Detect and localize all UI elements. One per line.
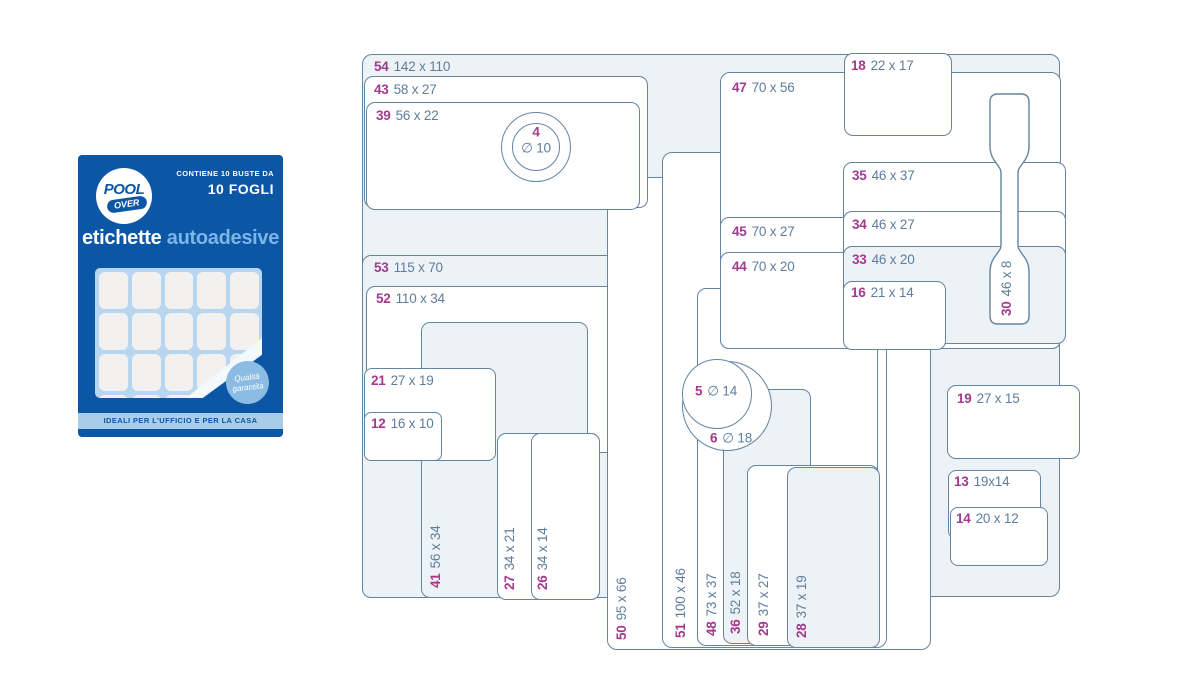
size-label-18: 1822 x 17 (851, 59, 914, 73)
size-label-39: 3956 x 22 (376, 109, 439, 123)
size-label-45: 4570 x 27 (732, 225, 795, 239)
size-label-43: 4358 x 27 (374, 83, 437, 97)
size-label-44: 4470 x 20 (732, 260, 795, 274)
size-label-51: 51100 x 46 (674, 568, 688, 638)
size-label-26: 2634 x 14 (536, 527, 550, 590)
size-label-30: 3046 x 8 (1000, 261, 1014, 316)
size-label-35: 3546 x 37 (852, 169, 915, 183)
stage: POOL OVER CONTIENE 10 BUSTE DA 10 FOGLI … (0, 0, 1200, 700)
size-label-28: 2837 x 19 (795, 575, 809, 638)
size-label-13: 1319x14 (954, 475, 1009, 489)
size-label-5: 5∅ 14 (695, 384, 737, 398)
size-label-16: 1621 x 14 (851, 286, 914, 300)
size-label-48: 4873 x 37 (705, 573, 719, 636)
size-label-19: 1927 x 15 (957, 392, 1020, 406)
size-label-29: 2937 x 27 (757, 573, 771, 636)
label-size-diagram: 54142 x 11053115 x 7052110 x 344156 x 34… (0, 0, 1200, 700)
size-label-53: 53115 x 70 (374, 261, 443, 275)
size-label-41: 4156 x 34 (429, 525, 443, 588)
size-label-34: 3446 x 27 (852, 218, 915, 232)
size-label-50: 5095 x 66 (615, 577, 629, 640)
size-label-52: 52110 x 34 (376, 292, 445, 306)
size-label-33: 3346 x 20 (852, 253, 915, 267)
size-label-4: 4∅ 10 (521, 126, 551, 155)
size-label-27: 2734 x 21 (503, 527, 517, 590)
size-label-54: 54142 x 110 (374, 60, 450, 74)
size-label-36: 3652 x 18 (729, 571, 743, 634)
size-label-6: 6∅ 18 (710, 431, 752, 445)
size-label-47: 4770 x 56 (732, 81, 795, 95)
size-label-12: 1216 x 10 (371, 417, 434, 431)
size-label-14: 1420 x 12 (956, 512, 1019, 526)
size-label-21: 2127 x 19 (371, 374, 434, 388)
